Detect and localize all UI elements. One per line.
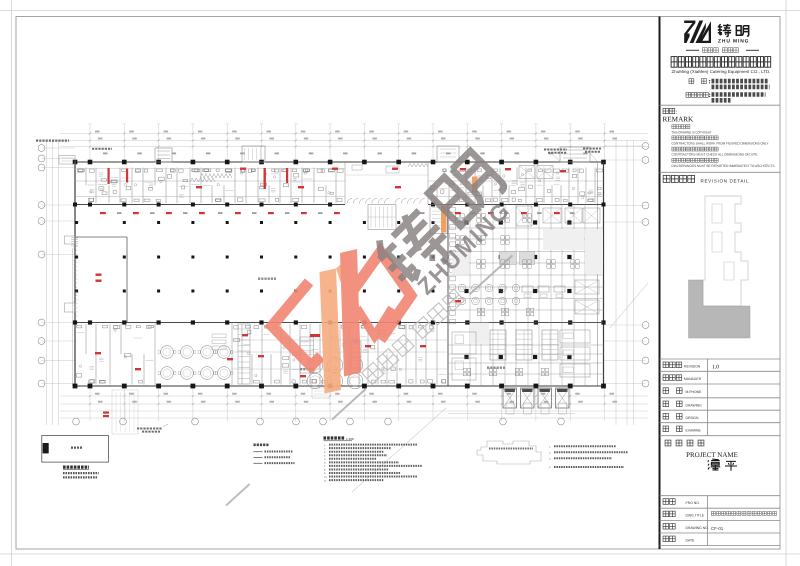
svg-text:8.: 8. (324, 469, 326, 472)
svg-text:DWG.TITLE: DWG.TITLE (686, 514, 705, 518)
svg-text:THIS DRAWING IS COPYRIGHT: THIS DRAWING IS COPYRIGHT (672, 130, 712, 134)
svg-text:11.: 11. (324, 479, 327, 482)
svg-text:CF-01: CF-01 (711, 526, 724, 531)
svg-text:M.PHONE: M.PHONE (686, 390, 703, 394)
svg-text:REMARK: REMARK (663, 116, 695, 124)
svg-text:1.: 1. (324, 444, 326, 447)
svg-text:2.: 2. (324, 447, 326, 450)
svg-text:5.: 5. (324, 458, 326, 461)
svg-text:DATE: DATE (686, 538, 696, 542)
svg-text:9.: 9. (324, 472, 326, 475)
svg-text:6.: 6. (324, 462, 326, 465)
svg-text:CONTRACTORS MUST CHECK ALL DIM: CONTRACTORS MUST CHECK ALL DIMENSIONS ON… (672, 153, 759, 157)
svg-text:2.: 2. (549, 451, 551, 454)
svg-text:7.: 7. (324, 465, 326, 468)
svg-text:1:100: 1:100 (346, 437, 354, 441)
svg-text:REVISION DETAIL: REVISION DETAIL (701, 178, 750, 183)
svg-text:DISCREPANCIES MUST BE REPORTED: DISCREPANCIES MUST BE REPORTED IMMEDIATE… (672, 164, 776, 168)
svg-text:10.: 10. (324, 476, 328, 479)
svg-text:1.0: 1.0 (712, 364, 719, 370)
svg-text:DESIGN: DESIGN (686, 416, 700, 420)
svg-text:4.: 4. (549, 466, 551, 469)
svg-text:3.: 3. (324, 451, 326, 454)
svg-text:DRAWING NO.: DRAWING NO. (686, 526, 709, 530)
svg-text:REVISION: REVISION (684, 364, 701, 368)
svg-text:ZHU MING: ZHU MING (718, 38, 749, 44)
svg-text:PROJECT NAME: PROJECT NAME (686, 451, 738, 459)
svg-text:MANAGER: MANAGER (684, 377, 702, 381)
svg-text:3.: 3. (549, 457, 551, 460)
svg-text:1.: 1. (549, 445, 551, 448)
svg-text:CONTRACTORS SHALL WORK FROM FI: CONTRACTORS SHALL WORK FROM FIGURED DIME… (672, 142, 770, 146)
svg-text:ZhuMing (XiaMen) Catering Equi: ZhuMing (XiaMen) Catering Equipment CO.,… (672, 69, 771, 74)
svg-text:EXAMINE: EXAMINE (686, 428, 702, 432)
svg-text:4.: 4. (324, 454, 326, 457)
svg-text:DRAWING: DRAWING (686, 403, 703, 407)
svg-text:PRO NO.: PRO NO. (686, 501, 700, 505)
